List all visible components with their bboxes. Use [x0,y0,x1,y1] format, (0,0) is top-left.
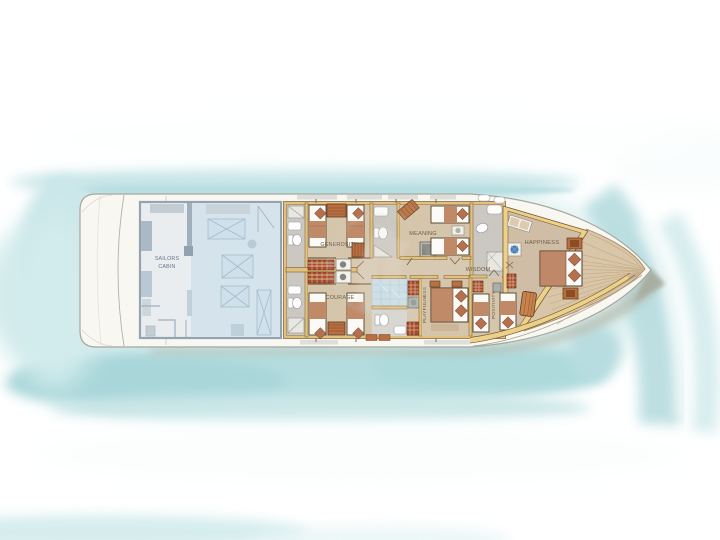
svg-text:WISDOM: WISDOM [466,267,491,273]
svg-text:SAILORS: SAILORS [155,256,180,262]
svg-text:CABIN: CABIN [158,264,175,270]
svg-text:HAPPINESS: HAPPINESS [525,240,560,246]
svg-text:POSITIVITY: POSITIVITY [491,290,496,318]
svg-text:GENEROSITY: GENEROSITY [320,242,358,248]
